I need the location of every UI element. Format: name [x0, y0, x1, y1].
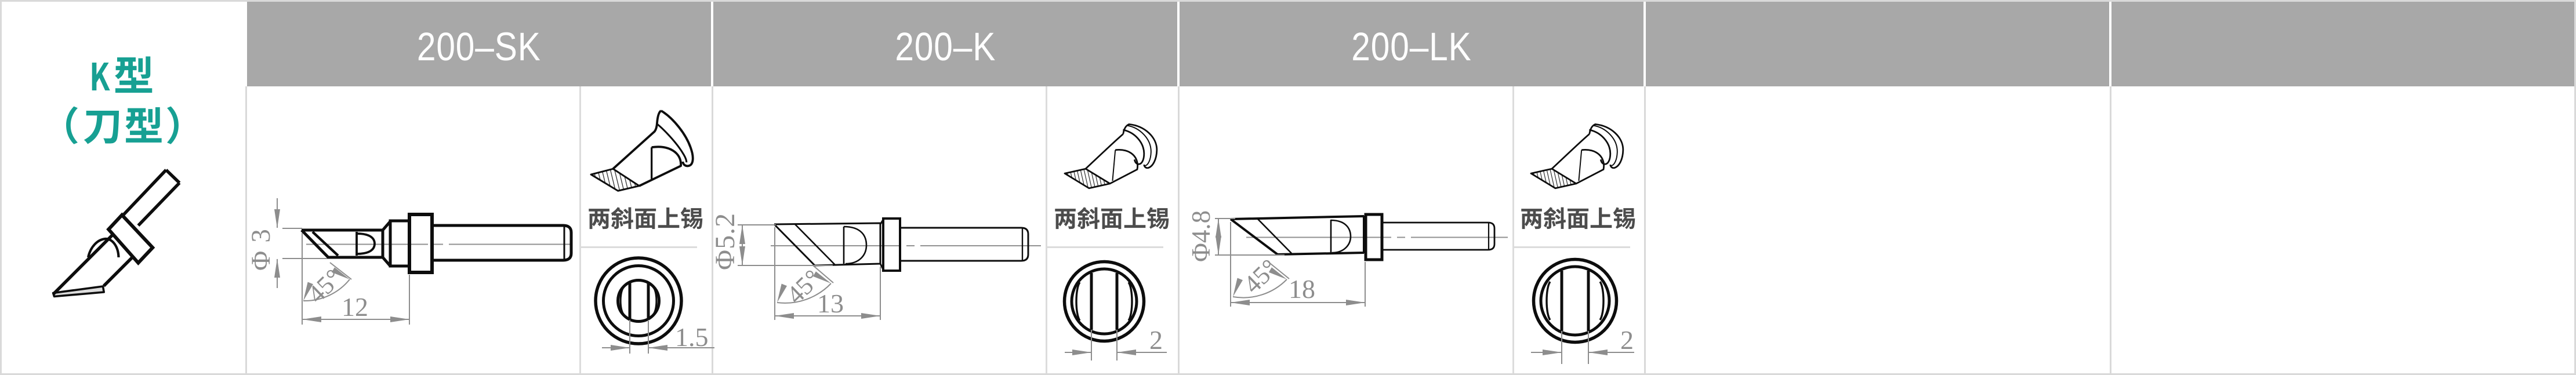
- svg-text:Φ5.2: Φ5.2: [710, 213, 741, 270]
- svg-text:13: 13: [817, 289, 844, 318]
- svg-text:Φ4.8: Φ4.8: [1187, 210, 1216, 262]
- svg-text:18: 18: [1289, 274, 1315, 304]
- svg-text:12: 12: [342, 292, 368, 322]
- svg-text:2: 2: [1149, 325, 1163, 355]
- svg-text:Φ3: Φ3: [246, 221, 276, 271]
- svg-text:1.5: 1.5: [675, 322, 709, 352]
- svg-text:2: 2: [1620, 325, 1634, 355]
- svg-text:45°: 45°: [1238, 254, 1283, 299]
